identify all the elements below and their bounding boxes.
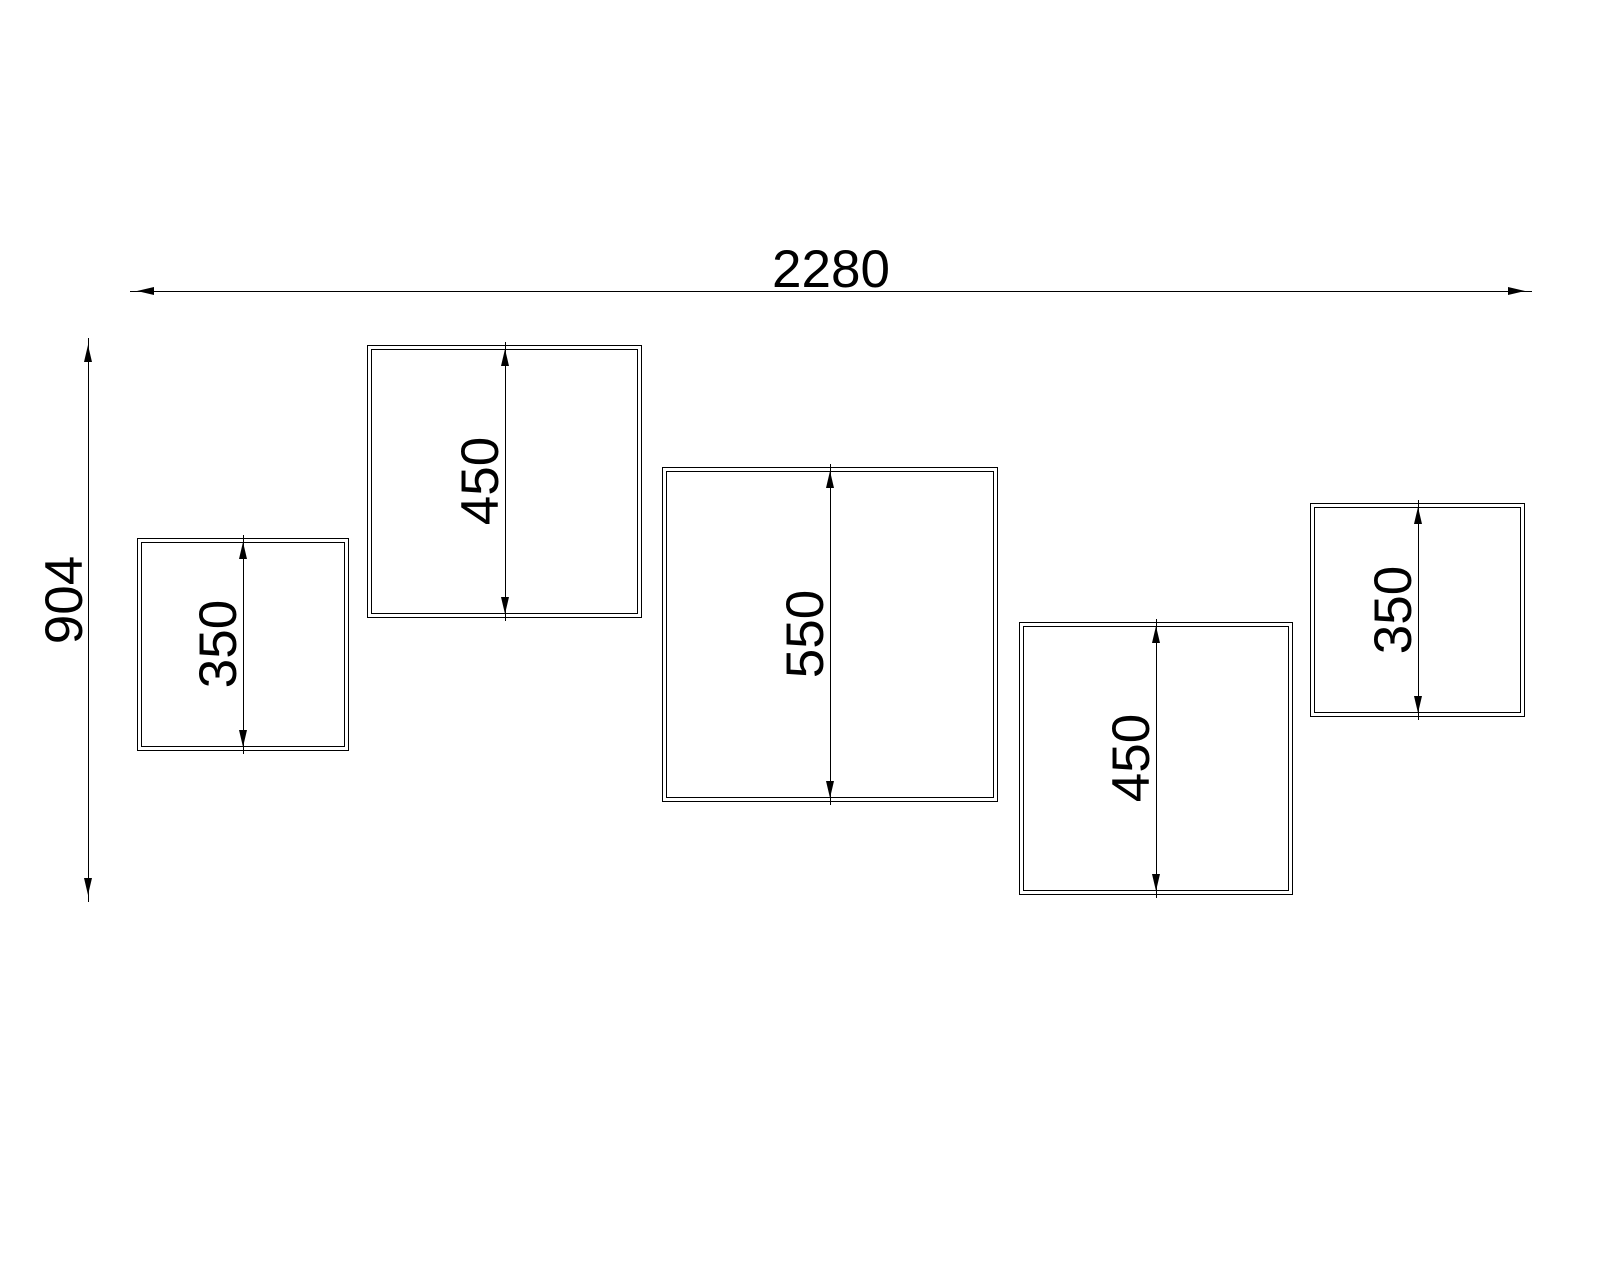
- arrowhead-right-icon: [1508, 287, 1525, 295]
- panel-4-height-label: 450: [1105, 658, 1159, 858]
- arrowhead-up-icon: [501, 349, 509, 366]
- arrowhead-left-icon: [137, 287, 154, 295]
- arrowhead-up-icon: [84, 345, 92, 362]
- arrowhead-down-icon: [826, 781, 834, 798]
- overall-width-label: 2280: [731, 243, 931, 297]
- arrowhead-up-icon: [1152, 626, 1160, 643]
- panel-5-height-label: 350: [1367, 510, 1421, 710]
- arrowhead-down-icon: [501, 597, 509, 614]
- panel-2-height-label: 450: [454, 381, 508, 581]
- arrowhead-up-icon: [826, 471, 834, 488]
- arrowhead-down-icon: [1152, 874, 1160, 891]
- overall-height-label: 904: [38, 500, 92, 700]
- panel-1-height-label: 350: [192, 544, 246, 744]
- panel-3-height-label: 550: [779, 534, 833, 734]
- technical-drawing-canvas: 2280 904 350 450 550 450 3: [0, 0, 1600, 1280]
- arrowhead-down-icon: [84, 878, 92, 895]
